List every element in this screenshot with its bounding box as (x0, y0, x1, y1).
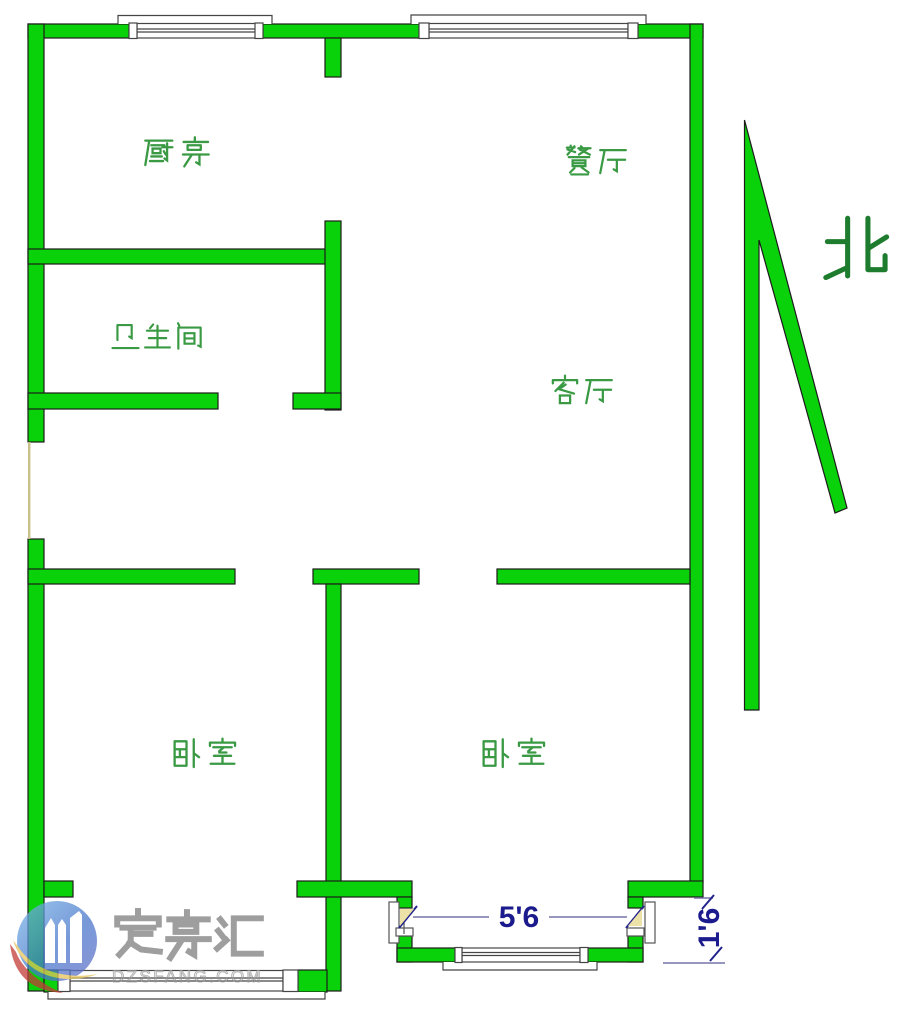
svg-text:1'6: 1'6 (693, 908, 726, 949)
svg-text:DZSFANG.COM: DZSFANG.COM (112, 967, 263, 986)
svg-text:5'6: 5'6 (499, 901, 540, 934)
